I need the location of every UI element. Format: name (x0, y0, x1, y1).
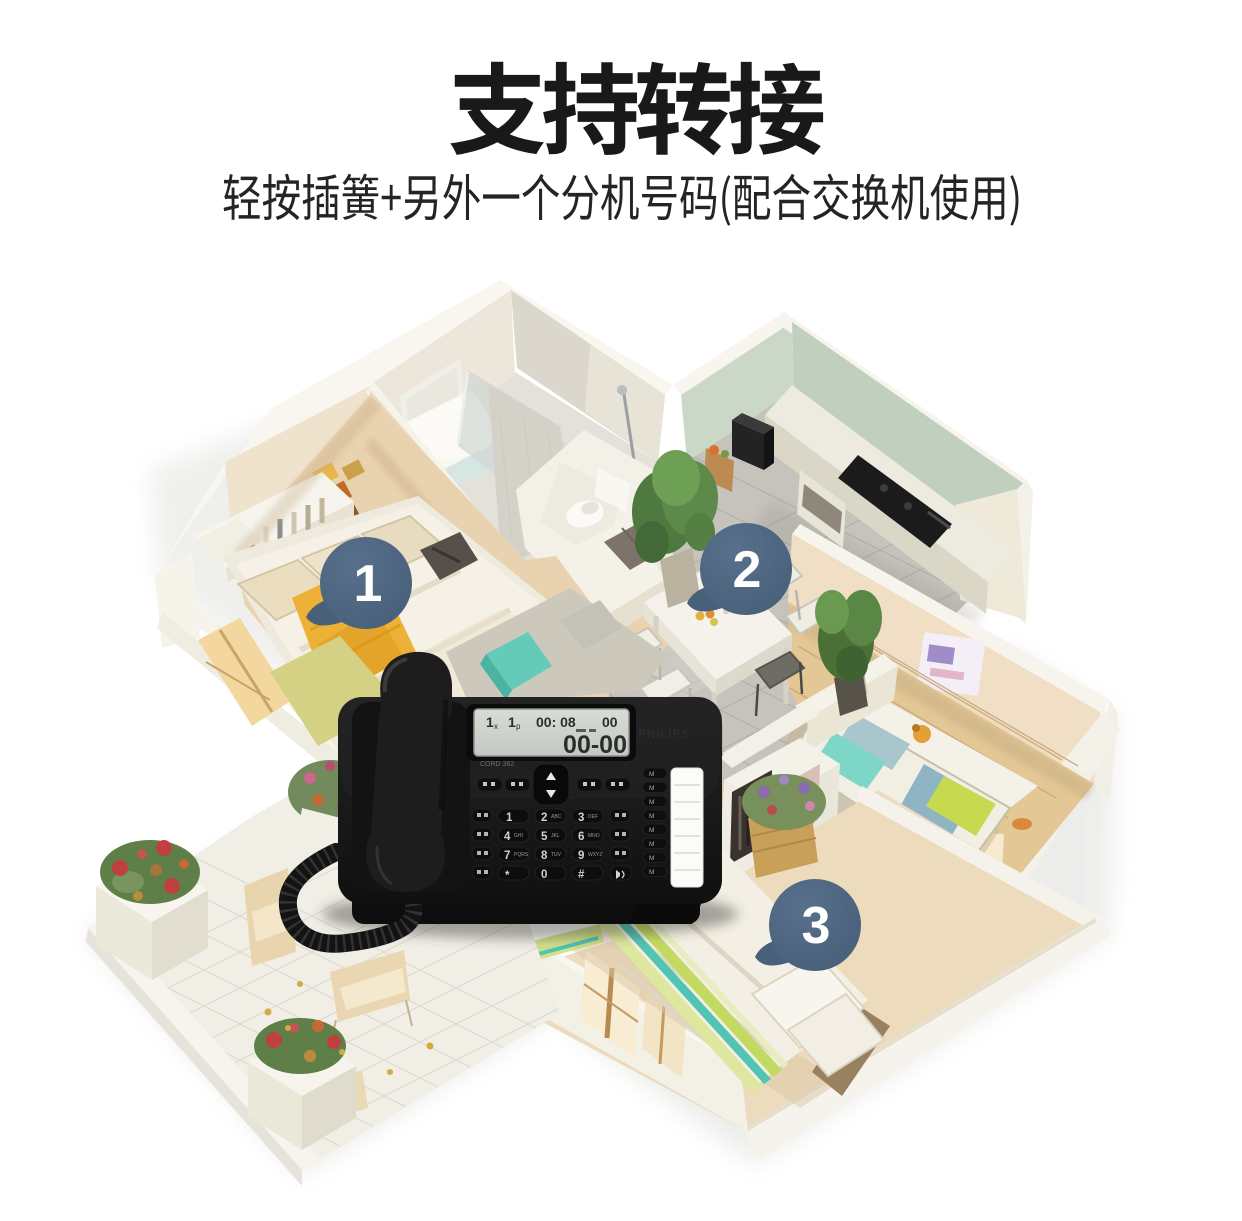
svg-text:1: 1 (506, 812, 513, 824)
svg-text:MNO: MNO (588, 833, 600, 839)
svg-text:00-00: 00-00 (563, 731, 627, 759)
svg-text:p: p (516, 722, 521, 731)
svg-text:1: 1 (354, 555, 383, 613)
svg-text:GHI: GHI (514, 833, 523, 839)
svg-text:2: 2 (541, 812, 547, 824)
svg-text:M: M (649, 771, 654, 778)
svg-text:M: M (649, 813, 654, 820)
svg-text:2: 2 (733, 541, 762, 599)
svg-text:3: 3 (802, 897, 831, 955)
svg-text:7: 7 (504, 850, 510, 862)
svg-text:00: 00 (602, 714, 618, 730)
svg-text:3: 3 (578, 812, 584, 824)
svg-text:5: 5 (541, 831, 548, 843)
svg-text:x: x (494, 722, 498, 731)
svg-text:M: M (649, 869, 654, 876)
svg-text:TUV: TUV (551, 852, 562, 858)
svg-text:6: 6 (578, 831, 584, 843)
svg-text:PQRS: PQRS (514, 852, 529, 858)
svg-text:JKL: JKL (551, 833, 560, 839)
svg-text:WXYZ: WXYZ (588, 852, 602, 858)
svg-text:M: M (649, 827, 654, 834)
svg-text:0: 0 (541, 869, 547, 881)
svg-text:DEF: DEF (588, 814, 598, 820)
svg-text:M: M (649, 841, 654, 848)
svg-text:PHILIPS: PHILIPS (638, 729, 690, 741)
svg-text:M: M (649, 785, 654, 792)
svg-text:M: M (649, 855, 654, 862)
svg-text:*: * (505, 870, 510, 882)
svg-text:ABC: ABC (551, 814, 562, 820)
svg-text:1: 1 (508, 714, 516, 730)
svg-text:4: 4 (504, 831, 511, 843)
svg-text:00: 08: 00: 08 (536, 714, 576, 730)
svg-text:M: M (649, 799, 654, 806)
svg-text:9: 9 (578, 850, 584, 862)
svg-text:1: 1 (486, 714, 494, 730)
svg-text:#: # (578, 869, 585, 881)
svg-text:8: 8 (541, 850, 548, 862)
svg-text:CORD 362: CORD 362 (480, 761, 514, 768)
